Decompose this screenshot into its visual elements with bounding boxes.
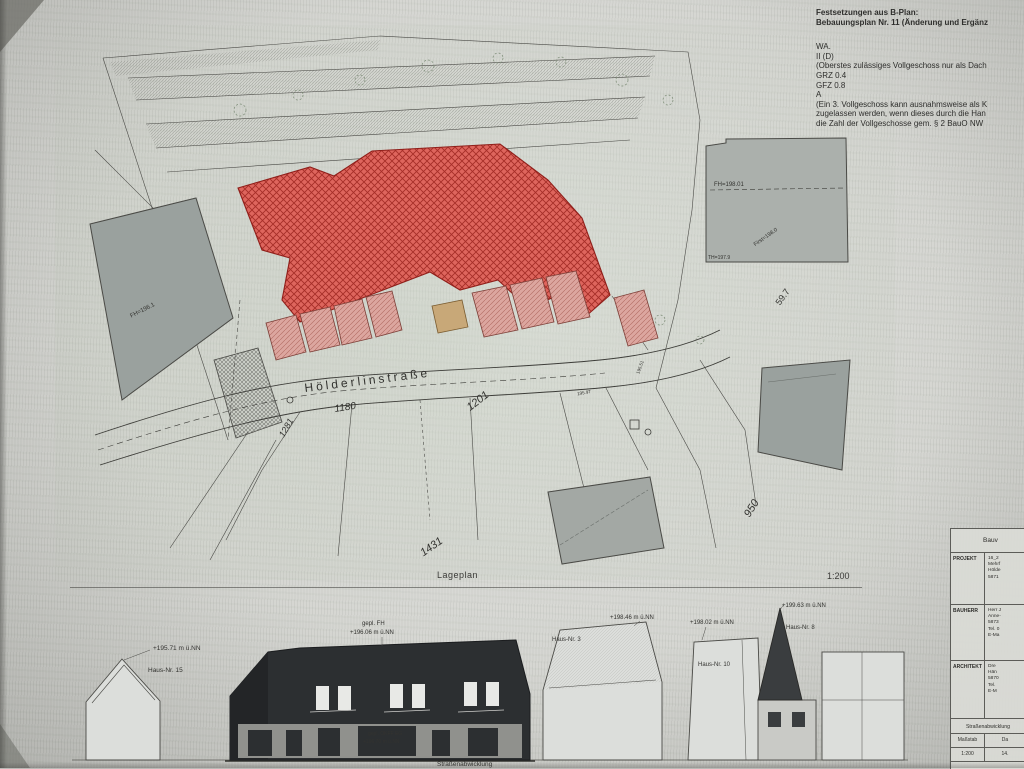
- parcel-597-label: 59.7: [773, 287, 791, 307]
- notes-line-zugelassen: zugelassen werden, wenn dieses durch die…: [816, 109, 1022, 119]
- notes-line-zahl: die Zahl der Vollgeschosse gem. § 2 BauO…: [816, 119, 1022, 129]
- titleblock-section: Straßenabwicklung: [951, 719, 1024, 734]
- garden-strip-hatching: [110, 40, 655, 148]
- elevation-planned-building: gepl. OKFF EG +196.70 m ü.NN gepl. FH +1…: [230, 621, 530, 760]
- lageplan-caption: Lageplan: [437, 570, 478, 580]
- bauherr-value-line: E-Ma: [988, 633, 1024, 639]
- datum-label: Da: [985, 734, 1024, 747]
- spot-19597-label: 195.97: [577, 389, 592, 396]
- photo-edge-shadow-bottom: [0, 762, 1024, 768]
- titleblock-columns-header: Maßstab Da: [951, 734, 1024, 748]
- ann-fh-value: +196.06 m ü.NN: [350, 630, 394, 636]
- title-block: Bauv PROJEKT 16_2 Mehrf Hölde 5871 BAUHE…: [950, 528, 1024, 769]
- lageplan-underline: [70, 587, 862, 588]
- architekt-value-line: E-M: [988, 689, 1024, 695]
- fh-topright-label: FH=198.01: [714, 182, 745, 188]
- ann-fh-label: gepl. FH: [362, 621, 385, 627]
- parcel-1431-label: 1431: [418, 535, 445, 559]
- gray-building-top-right: FH=198.01 First=198.0 TH=197.9: [706, 138, 848, 262]
- hatched-area: [214, 348, 282, 438]
- haus3-label: Haus-Nr. 3: [552, 637, 581, 643]
- haus15-label: Haus-Nr. 15: [148, 667, 183, 674]
- architekt-label: ARCHITEKT: [951, 661, 985, 718]
- projekt-value: 16_2 Mehrf Hölde 5871: [985, 553, 1024, 604]
- massstab-value: 1:200: [951, 748, 985, 761]
- notes-line-gfz: GFZ 0.8: [816, 81, 1022, 91]
- notes-line-wa: WA.: [816, 42, 1022, 52]
- bauherr-value: Herr J Anne- 5873 Tel. 0 E-Ma: [985, 605, 1024, 660]
- architekt-value: Dre Hän 5870 Tel. E-M: [985, 661, 1024, 718]
- notes-line-ii-d: II (D): [816, 52, 1022, 62]
- elevation-building-right-partial: [822, 652, 904, 760]
- elevation-haus-10: Haus-Nr. 10 +198.02 m ü.NN: [688, 620, 762, 760]
- elevation-haus-8: Haus-Nr. 8 +199.63 m ü.NN: [758, 603, 826, 760]
- ann-19963-label: +199.63 m ü.NN: [782, 603, 826, 609]
- elevation-haus-3: Haus-Nr. 3 +198.46 m ü.NN: [543, 615, 662, 760]
- gray-building-left: FH=196.1: [90, 198, 233, 400]
- titleblock-row-bauherr: BAUHERR Herr J Anne- 5873 Tel. 0 E-Ma: [951, 605, 1024, 661]
- bauherr-label: BAUHERR: [951, 605, 985, 660]
- projekt-label: PROJEKT: [951, 553, 985, 604]
- notes-line-grz: GRZ 0.4: [816, 71, 1022, 81]
- ann-19846-label: +198.46 m ü.NN: [610, 615, 654, 621]
- lageplan-scale: 1:200: [827, 571, 850, 581]
- titleblock-columns-values: 1:200 14.: [951, 748, 1024, 762]
- notes-title: Festsetzungen aus B-Plan:: [816, 8, 1022, 18]
- spot-19551-label: 195.51: [635, 359, 645, 374]
- haus8-label: Haus-Nr. 8: [786, 625, 815, 631]
- photo-of-site-plan: FH=196.1 FH=198.01 First=198.0 TH=197.9: [0, 0, 1024, 768]
- gray-building-bottom: [548, 477, 664, 564]
- projekt-value-line: 5871: [988, 575, 1024, 581]
- elevation-drawing: +195.71 m ü.NN Haus-Nr. 15: [72, 603, 908, 768]
- massstab-label: Maßstab: [951, 734, 985, 747]
- titleblock-row-architekt: ARCHITEKT Dre Hän 5870 Tel. E-M: [951, 661, 1024, 719]
- titleblock-header: Bauv: [951, 529, 1024, 553]
- parcel-950-label: 950: [742, 497, 762, 520]
- photo-edge-shadow-left: [0, 0, 7, 768]
- tan-building: [432, 300, 468, 333]
- titleblock-row-projekt: PROJEKT 16_2 Mehrf Hölde 5871: [951, 553, 1024, 605]
- bplan-notes: Festsetzungen aus B-Plan: Bebauungsplan …: [816, 8, 1022, 129]
- ann-19802-label: +198.02 m ü.NN: [690, 620, 734, 626]
- ann-19571-label: +195.71 m ü.NN: [153, 645, 201, 652]
- datum-value: 14.: [985, 748, 1024, 761]
- gray-building-right: [758, 360, 850, 470]
- parcel-1180-label: 1180: [334, 401, 357, 415]
- haus10-label: Haus-Nr. 10: [698, 662, 731, 668]
- okff-value: +196.70 m ü.NN: [363, 739, 400, 745]
- parcel-1201-label: 1201: [465, 389, 492, 414]
- notes-line-oberstes: (Oberstes zulässiges Vollgeschoss nur al…: [816, 61, 1022, 71]
- th-topright-label: TH=197.9: [708, 255, 730, 261]
- street-name-label: Hölderlinstraße: [304, 366, 431, 395]
- notes-subtitle: Bebauungsplan Nr. 11 (Änderung und Ergän…: [816, 18, 1022, 28]
- notes-line-a: A: [816, 90, 1022, 100]
- okff-label: gepl. OKFF EG: [368, 731, 402, 737]
- notes-line-ein3: (Ein 3. Vollgeschoss kann ausnahmsweise …: [816, 100, 1022, 110]
- elevation-haus-15: +195.71 m ü.NN Haus-Nr. 15: [86, 645, 201, 760]
